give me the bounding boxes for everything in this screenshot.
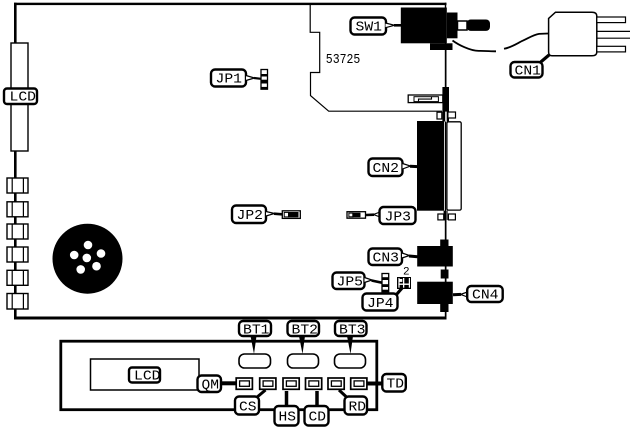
- svg-text:TD: TD: [387, 376, 405, 392]
- svg-text:SW1: SW1: [356, 20, 383, 36]
- svg-text:RD: RD: [349, 400, 367, 416]
- svg-text:CN3: CN3: [373, 251, 400, 267]
- svg-text:CS: CS: [239, 400, 257, 416]
- svg-text:JP5: JP5: [337, 275, 364, 291]
- svg-text:JP4: JP4: [367, 296, 394, 312]
- svg-text:CD: CD: [309, 410, 327, 426]
- svg-text:CN2: CN2: [373, 161, 400, 177]
- svg-text:CN1: CN1: [515, 63, 542, 79]
- svg-text:2: 2: [403, 267, 410, 279]
- svg-text:QM: QM: [202, 378, 220, 394]
- svg-text:LCD: LCD: [10, 90, 37, 106]
- svg-text:JP1: JP1: [216, 72, 243, 88]
- svg-text:BT2: BT2: [292, 322, 319, 338]
- svg-text:BT1: BT1: [243, 322, 270, 338]
- svg-text:HS: HS: [279, 410, 297, 426]
- svg-text:LCD: LCD: [134, 369, 161, 385]
- svg-text:JP2: JP2: [237, 208, 264, 224]
- svg-text:53725: 53725: [326, 52, 361, 68]
- svg-text:BT3: BT3: [339, 322, 366, 338]
- svg-text:JP3: JP3: [385, 209, 412, 225]
- svg-text:CN4: CN4: [472, 288, 499, 304]
